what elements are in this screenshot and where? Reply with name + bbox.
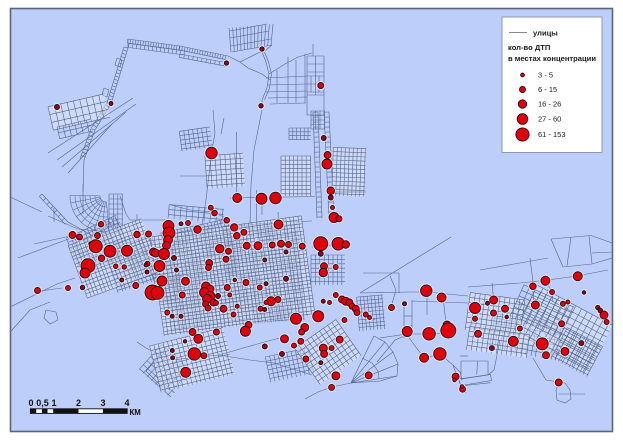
svg-text:16 - 26: 16 - 26 (538, 100, 561, 109)
svg-text:61 - 153: 61 - 153 (538, 130, 566, 139)
svg-text:3: 3 (100, 398, 105, 408)
svg-text:0,5: 0,5 (36, 398, 49, 408)
svg-text:кол-во ДТП: кол-во ДТП (508, 43, 550, 52)
svg-text:2: 2 (76, 398, 81, 408)
svg-text:4: 4 (124, 398, 129, 408)
svg-text:КМ: КМ (130, 408, 141, 417)
svg-text:1: 1 (51, 398, 56, 408)
svg-text:3 - 5: 3 - 5 (538, 71, 553, 80)
svg-text:0: 0 (28, 398, 33, 408)
svg-text:6 - 15: 6 - 15 (538, 85, 557, 94)
svg-text:улицы: улицы (533, 29, 558, 38)
svg-text:27 - 60: 27 - 60 (538, 115, 561, 124)
svg-text:в местах концентрации: в местах концентрации (508, 54, 596, 63)
